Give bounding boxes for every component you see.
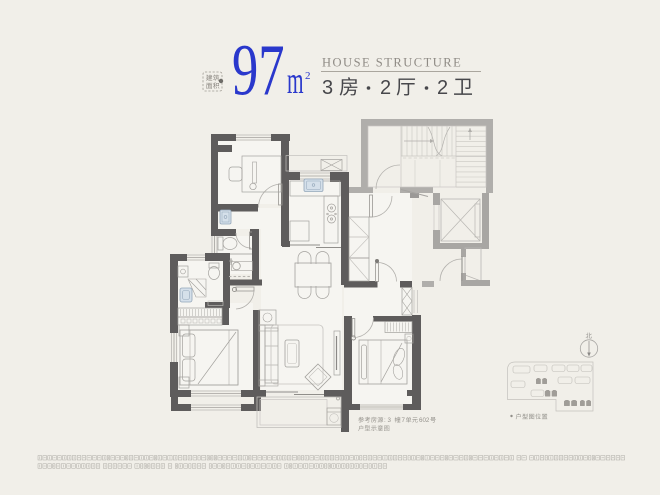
svg-text:HOUSE STRUCTURE: HOUSE STRUCTURE: [322, 56, 462, 70]
svg-text:7: 7: [402, 417, 406, 424]
svg-text:2: 2: [380, 77, 391, 99]
svg-text:2: 2: [305, 70, 311, 82]
svg-text:602: 602: [419, 417, 430, 424]
svg-text:3: 3: [322, 77, 333, 99]
svg-text:: 3: : 3: [384, 417, 391, 424]
svg-text:2: 2: [437, 77, 448, 99]
svg-text:97: 97: [232, 29, 285, 110]
svg-text:m: m: [287, 60, 304, 102]
